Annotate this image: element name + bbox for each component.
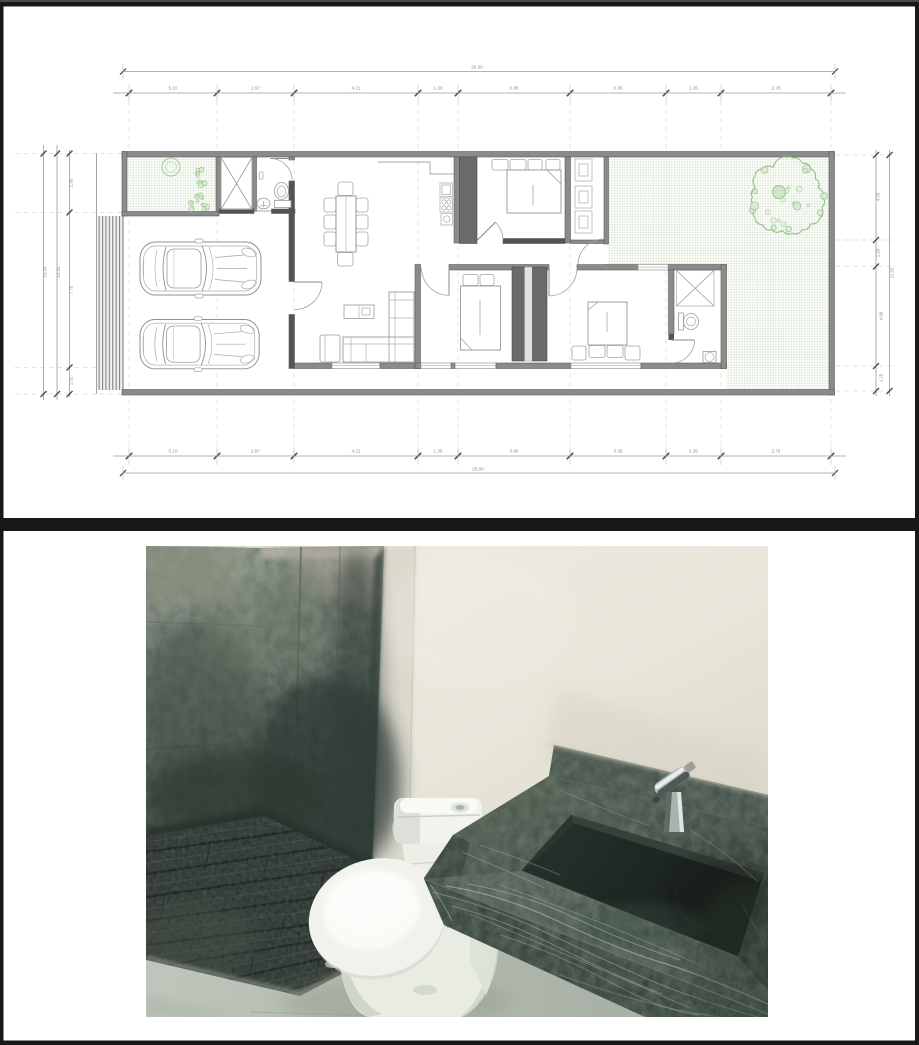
svg-text:7.75: 7.75 [69, 285, 74, 294]
svg-text:13.42: 13.42 [56, 266, 61, 278]
svg-text:15.34: 15.34 [43, 266, 48, 278]
svg-text:3.36: 3.36 [614, 86, 623, 91]
svg-text:3.86: 3.86 [510, 449, 519, 454]
svg-text:5.10: 5.10 [169, 86, 178, 91]
svg-text:1.30: 1.30 [434, 449, 443, 454]
svg-text:2.95: 2.95 [69, 178, 74, 187]
svg-text:1.29: 1.29 [876, 248, 881, 257]
svg-text:25.00: 25.00 [471, 65, 483, 70]
svg-text:11.93: 11.93 [890, 267, 895, 278]
svg-text:1.35: 1.35 [689, 449, 698, 454]
svg-text:2.97: 2.97 [251, 449, 260, 454]
svg-text:1.32: 1.32 [69, 376, 74, 385]
svg-text:3.36: 3.36 [614, 449, 623, 454]
svg-text:3.86: 3.86 [510, 86, 519, 91]
svg-text:4.21: 4.21 [352, 449, 361, 454]
svg-text:1.35: 1.35 [689, 86, 698, 91]
svg-text:25.00: 25.00 [472, 467, 484, 472]
svg-text:2.97: 2.97 [251, 86, 260, 91]
svg-text:1.30: 1.30 [434, 86, 443, 91]
svg-text:5.10: 5.10 [169, 449, 178, 454]
svg-text:4.98: 4.98 [879, 311, 884, 320]
svg-text:4.21: 4.21 [352, 86, 361, 91]
svg-text:1.25: 1.25 [879, 373, 884, 382]
svg-text:2.78: 2.78 [772, 86, 781, 91]
svg-text:2.78: 2.78 [772, 449, 781, 454]
svg-text:4.33: 4.33 [876, 192, 881, 201]
